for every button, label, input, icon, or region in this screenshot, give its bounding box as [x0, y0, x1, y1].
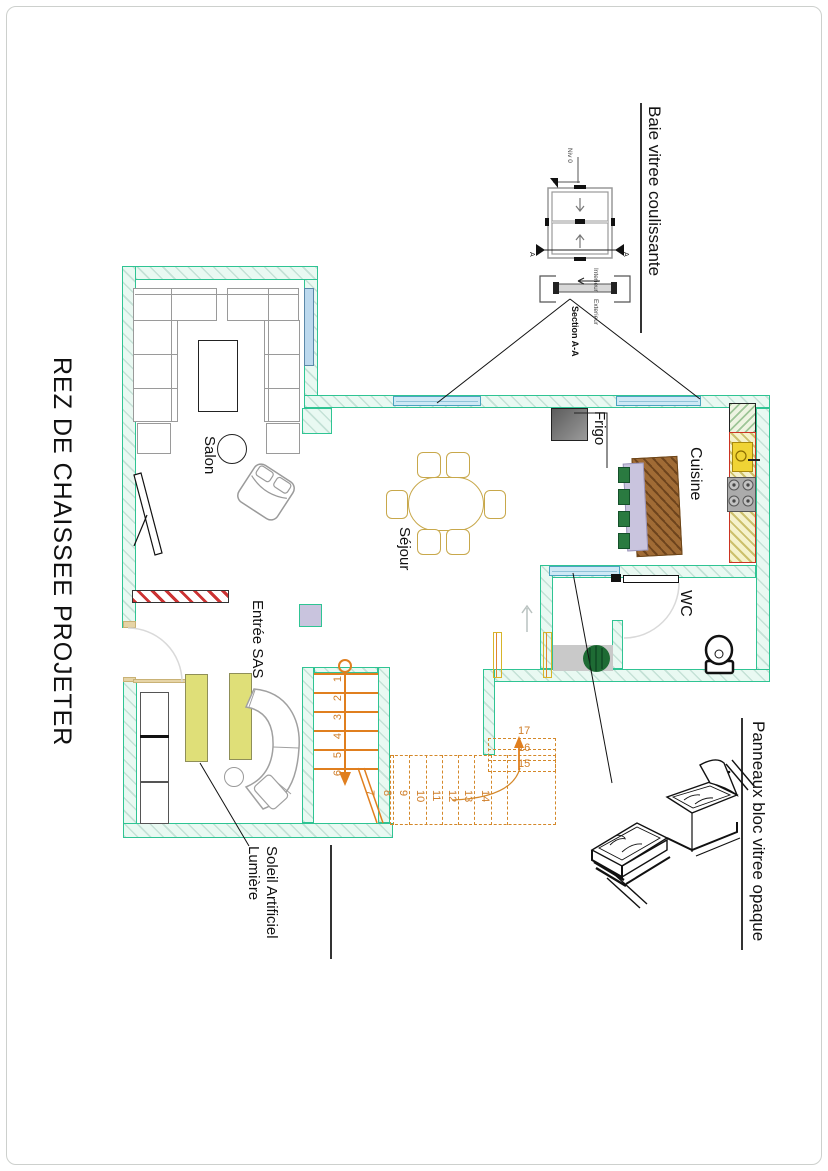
label-baie-vitree: Baie vitree coulissante — [644, 106, 664, 276]
stair-walkline-2 — [452, 736, 524, 800]
leader-glassblock — [573, 573, 612, 783]
window-elevation-drawing — [536, 157, 624, 261]
label-cuisine: Cuisine — [686, 447, 704, 500]
window-section-drawing — [540, 276, 630, 302]
label-sejour: Séjour — [396, 527, 413, 570]
lineart-overlay — [0, 0, 828, 1171]
label-interieur: Interieur — [592, 268, 599, 292]
tv — [134, 473, 162, 555]
armchair — [235, 461, 298, 523]
label-exterieur: Exterieur — [592, 299, 599, 325]
label-cut-a-right: A — [622, 252, 629, 257]
leader-lumiere — [200, 763, 249, 846]
leader-window-1 — [437, 299, 570, 403]
curved-sofa — [246, 689, 299, 811]
label-cut-a-left: A — [528, 252, 535, 257]
label-lumiere-line2: Soleil Artificiel — [263, 846, 280, 939]
toilet — [706, 636, 733, 673]
leader-window-2 — [570, 299, 700, 399]
sheet-title: REZ DE CHAISSEE PROJETER — [47, 357, 76, 746]
label-lumiere-line1: Lumière — [245, 846, 262, 900]
label-panneaux: Panneaux bloc vitree opaque — [748, 721, 768, 941]
stove-burners — [729, 480, 753, 506]
plant-foliage — [590, 646, 602, 671]
sink-detail — [736, 451, 760, 461]
glass-block-isometric — [592, 760, 754, 908]
entree-door-arc — [128, 628, 182, 682]
label-wc: WC — [676, 590, 694, 617]
label-frigo: Frigo — [591, 411, 608, 445]
label-entree-sas: Entrée SAS — [249, 600, 266, 678]
stair-walkline-1 — [339, 660, 383, 823]
flow-arrow — [522, 606, 532, 632]
floor-plan-sheet: 1 2 3 4 5 6 7 8 9 10 11 12 13 14 15 16 1… — [0, 0, 828, 1171]
label-salon: Salon — [201, 436, 218, 474]
wc-door-arc — [624, 583, 679, 638]
label-section-aa: Section A-A — [570, 306, 580, 357]
label-niv-0: Niv 0 — [566, 148, 573, 163]
